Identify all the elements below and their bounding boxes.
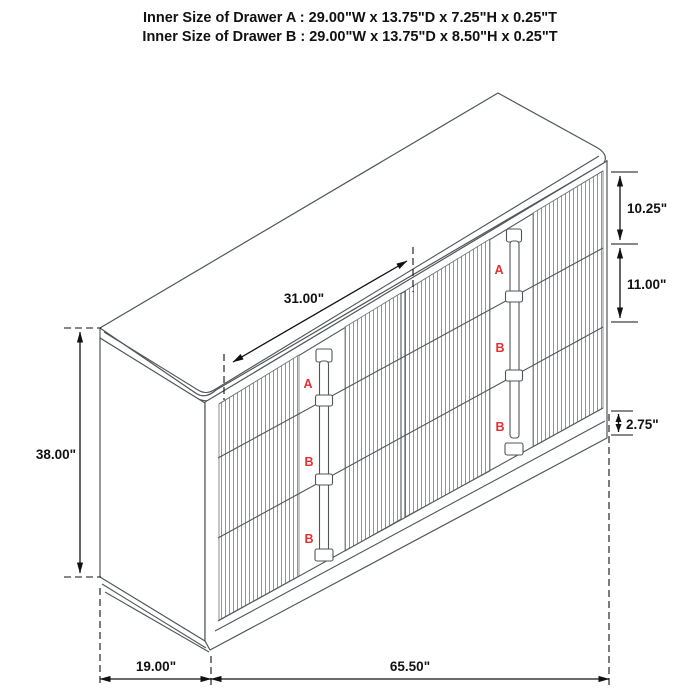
- dim-label-base-height: 2.75": [626, 417, 659, 432]
- drawer-marker-b2-left: B: [304, 532, 313, 546]
- drawer-marker-b1-right: B: [495, 341, 504, 355]
- fluted-panel-4: [533, 171, 603, 447]
- dim-label-total-height: 38.00": [36, 447, 76, 462]
- product-dimension-diagram: Inner Size of Drawer A : 29.00"W x 13.75…: [0, 0, 700, 700]
- drawer-marker-b2-right: B: [495, 420, 504, 434]
- dim-label-drawer-width: 31.00": [284, 291, 324, 306]
- dim-label-total-width: 65.50": [390, 659, 430, 674]
- dim-drawer-b-height: 11.00": [611, 248, 666, 322]
- fluted-panel-2: [345, 293, 401, 551]
- dresser-line-drawing: A B B A B B 31.00" 10.25" 11.00": [0, 0, 700, 700]
- drawer-marker-b1-left: B: [304, 455, 313, 469]
- dim-label-depth: 19.00": [136, 659, 176, 674]
- dim-label-drawer-a-height: 10.25": [627, 201, 667, 216]
- dim-base-height: 2.75": [611, 411, 659, 435]
- dim-label-drawer-b-height: 11.00": [627, 277, 666, 292]
- dim-drawer-a-height: 10.25": [611, 172, 667, 244]
- drawer-marker-a-right: A: [494, 263, 503, 277]
- dim-total-height: 38.00": [36, 328, 101, 577]
- drawer-marker-a-left: A: [303, 377, 312, 391]
